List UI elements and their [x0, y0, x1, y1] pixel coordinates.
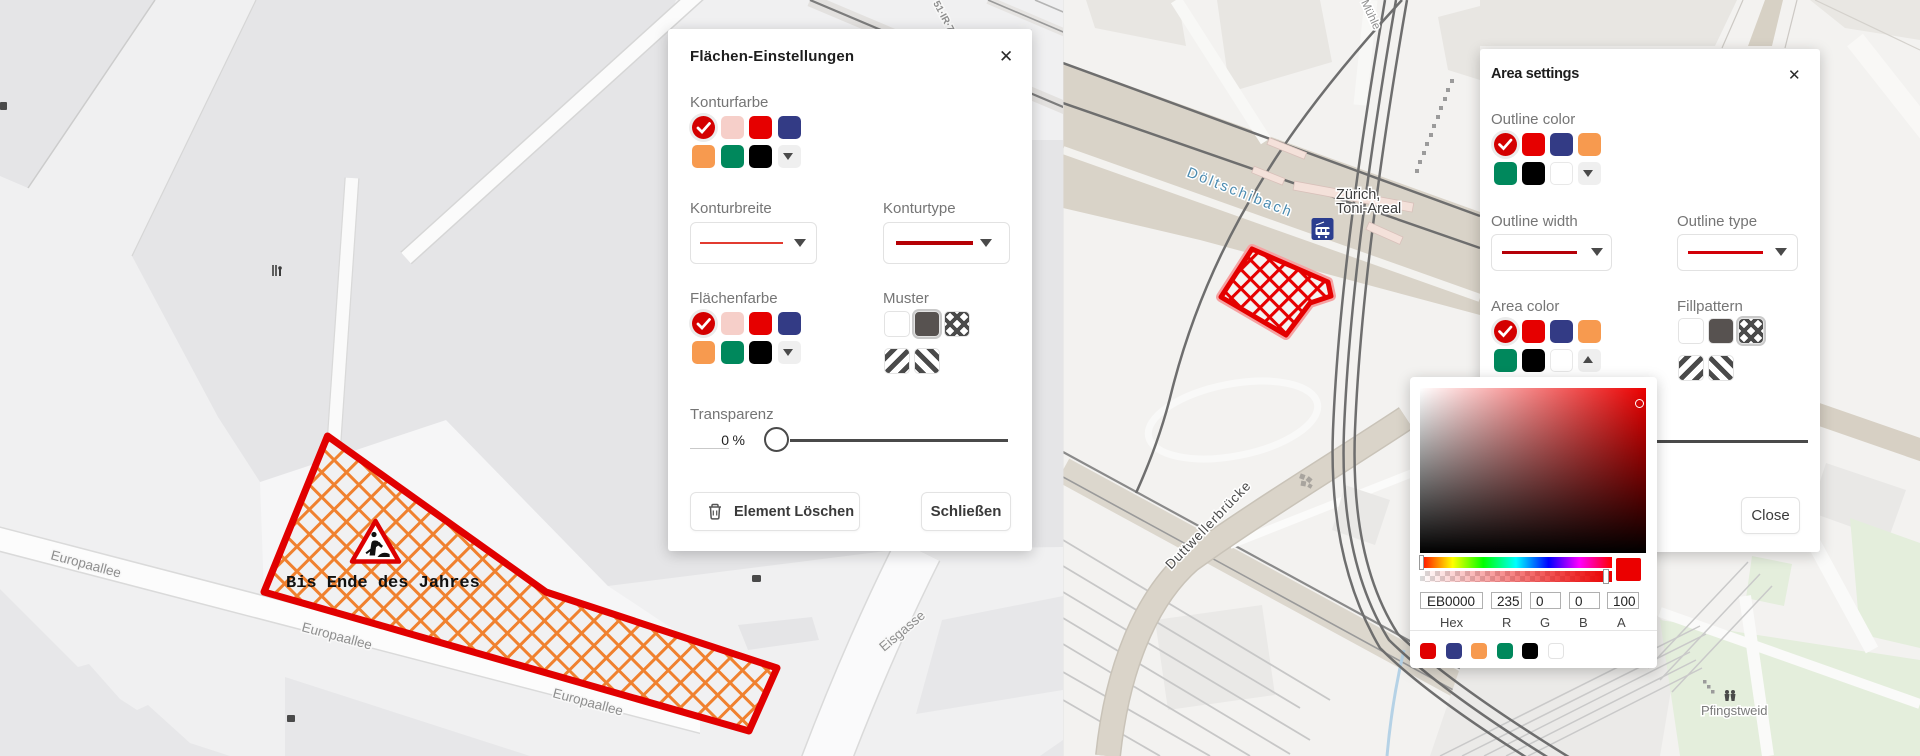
- svg-text:Pfingstweid: Pfingstweid: [1701, 703, 1767, 718]
- svg-text:Bis Ende des Jahres: Bis Ende des Jahres: [286, 574, 480, 593]
- svg-text:Toni-Areal: Toni-Areal: [1336, 201, 1401, 217]
